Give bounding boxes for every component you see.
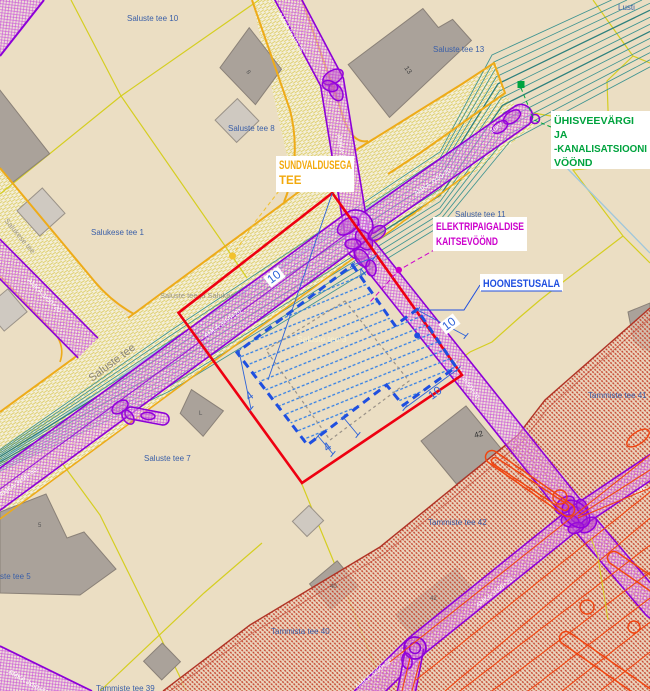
svg-text:Saluste tee 10: Saluste tee 10 (127, 14, 179, 23)
svg-text:Salukese tee 1: Salukese tee 1 (91, 228, 144, 237)
svg-text:Saluste tee 7: Saluste tee 7 (144, 454, 191, 463)
svg-text:TEE: TEE (279, 175, 302, 187)
svg-text:Tammista tee 40: Tammista tee 40 (271, 627, 330, 636)
svg-text:VÖÖND: VÖÖND (554, 156, 593, 169)
svg-text:ELEKTRIPAIGALDISE: ELEKTRIPAIGALDISE (436, 221, 524, 233)
svg-text:Lusti: Lusti (618, 3, 635, 12)
svg-text:Tammiste tee 42: Tammiste tee 42 (428, 518, 487, 527)
svg-text:SUNDVALDUSEGA: SUNDVALDUSEGA (279, 160, 352, 172)
svg-text:Saluste tee 13: Saluste tee 13 (433, 45, 485, 54)
svg-text:42: 42 (430, 596, 437, 602)
svg-text:KAITSEVÖÖND: KAITSEVÖÖND (436, 235, 498, 248)
svg-text:JA: JA (554, 129, 568, 141)
svg-text:Tammiste tee 41: Tammiste tee 41 (588, 391, 647, 400)
svg-text:ste tee 5: ste tee 5 (0, 572, 31, 581)
svg-text:Saluste tee 3: Saluste tee 3 (297, 334, 347, 344)
svg-text:40: 40 (330, 584, 337, 590)
svg-text:ÜHISVEEVÄRGI: ÜHISVEEVÄRGI (554, 114, 634, 127)
svg-text:HOONESTUSALA: HOONESTUSALA (483, 278, 560, 290)
svg-text:Saluste tee 8: Saluste tee 8 (228, 124, 275, 133)
svg-text:-KANALISATSIOONI: -KANALISATSIOONI (554, 143, 647, 155)
svg-text:Tammiste tee 39: Tammiste tee 39 (96, 684, 155, 691)
